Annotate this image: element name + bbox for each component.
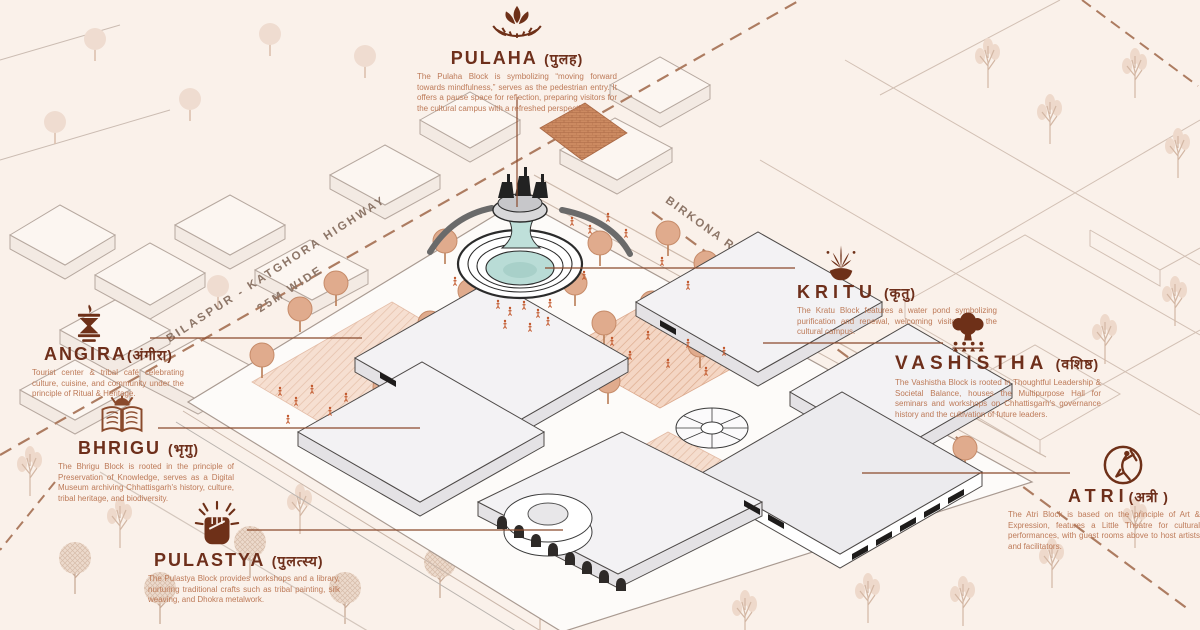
- block-name-devanagari: (कृतु): [884, 285, 916, 301]
- dhokra-sculptures: [498, 167, 548, 198]
- dancer-in-circle-icon: [1102, 444, 1144, 486]
- annotation-atri: ATRI(अत्री ) The Atri Block is based on …: [1008, 444, 1200, 552]
- annotation-pulaha: PULAHA (पुलह) The Pulaha Block is symbol…: [417, 4, 617, 114]
- raised-fist-craft-icon: [190, 500, 244, 550]
- block-name: ATRI: [1068, 486, 1129, 506]
- block-name-devanagari: (पुलत्स्य): [272, 553, 324, 569]
- site-plan-canvas: BILASPUR - KATGHORA HIGHWAY 25M WIDE BIR…: [0, 0, 1200, 630]
- block-name: PULAHA: [451, 48, 537, 68]
- block-description: The Pulastya Block provides workshops an…: [148, 574, 340, 606]
- tree-with-people-icon: [939, 311, 997, 353]
- block-description: The Atri Block is based on the principle…: [1008, 510, 1200, 552]
- annotation-pulastya: PULASTYA (पुलत्स्य) The Pulastya Block p…: [148, 500, 340, 606]
- block-name: VASHISTHA: [895, 353, 1048, 374]
- block-name-devanagari: (अंगीरा): [127, 347, 173, 363]
- block-name-devanagari: (अत्री ): [1129, 489, 1169, 505]
- annotation-angira: ANGIRA(अंगीरा) Tourist center & tribal c…: [32, 304, 184, 400]
- block-description: The Vashistha Block is rooted in Thought…: [895, 378, 1101, 420]
- block-name-devanagari: (भृगु): [168, 441, 199, 457]
- sprout-offering-icon: [821, 242, 861, 282]
- block-name-devanagari: (पुलह): [544, 51, 583, 67]
- block-description: The Pulaha Block is symbolizing “moving …: [417, 72, 617, 114]
- block-name-devanagari: (वशिष्ठ): [1056, 356, 1100, 372]
- block-name: BHRIGU: [78, 438, 161, 458]
- annotation-bhrigu: BHRIGU (भृगु) The Bhrigu Block is rooted…: [58, 394, 234, 504]
- block-description: The Bhrigu Block is rooted in the princi…: [58, 462, 234, 504]
- fire-altar-icon: [72, 304, 106, 344]
- block-name: KRITU: [797, 282, 877, 302]
- block-name: ANGIRA: [44, 344, 127, 364]
- annotation-vashistha: VASHISTHA (वशिष्ठ) The Vashistha Block i…: [895, 311, 1101, 420]
- block-name: PULASTYA: [154, 550, 265, 570]
- open-book-icon: [96, 394, 148, 438]
- lotus-flower-icon: [489, 4, 545, 48]
